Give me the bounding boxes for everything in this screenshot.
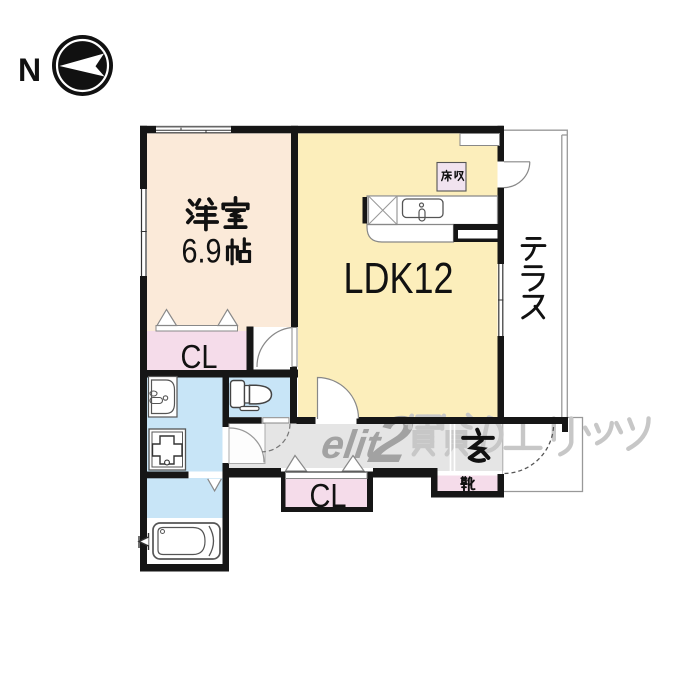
svg-text:6.9: 6.9 bbox=[182, 233, 222, 271]
svg-text:N: N bbox=[18, 52, 41, 88]
svg-text:LDK12: LDK12 bbox=[344, 254, 454, 303]
svg-text:CL: CL bbox=[181, 338, 218, 375]
svg-text:CL: CL bbox=[310, 477, 347, 514]
